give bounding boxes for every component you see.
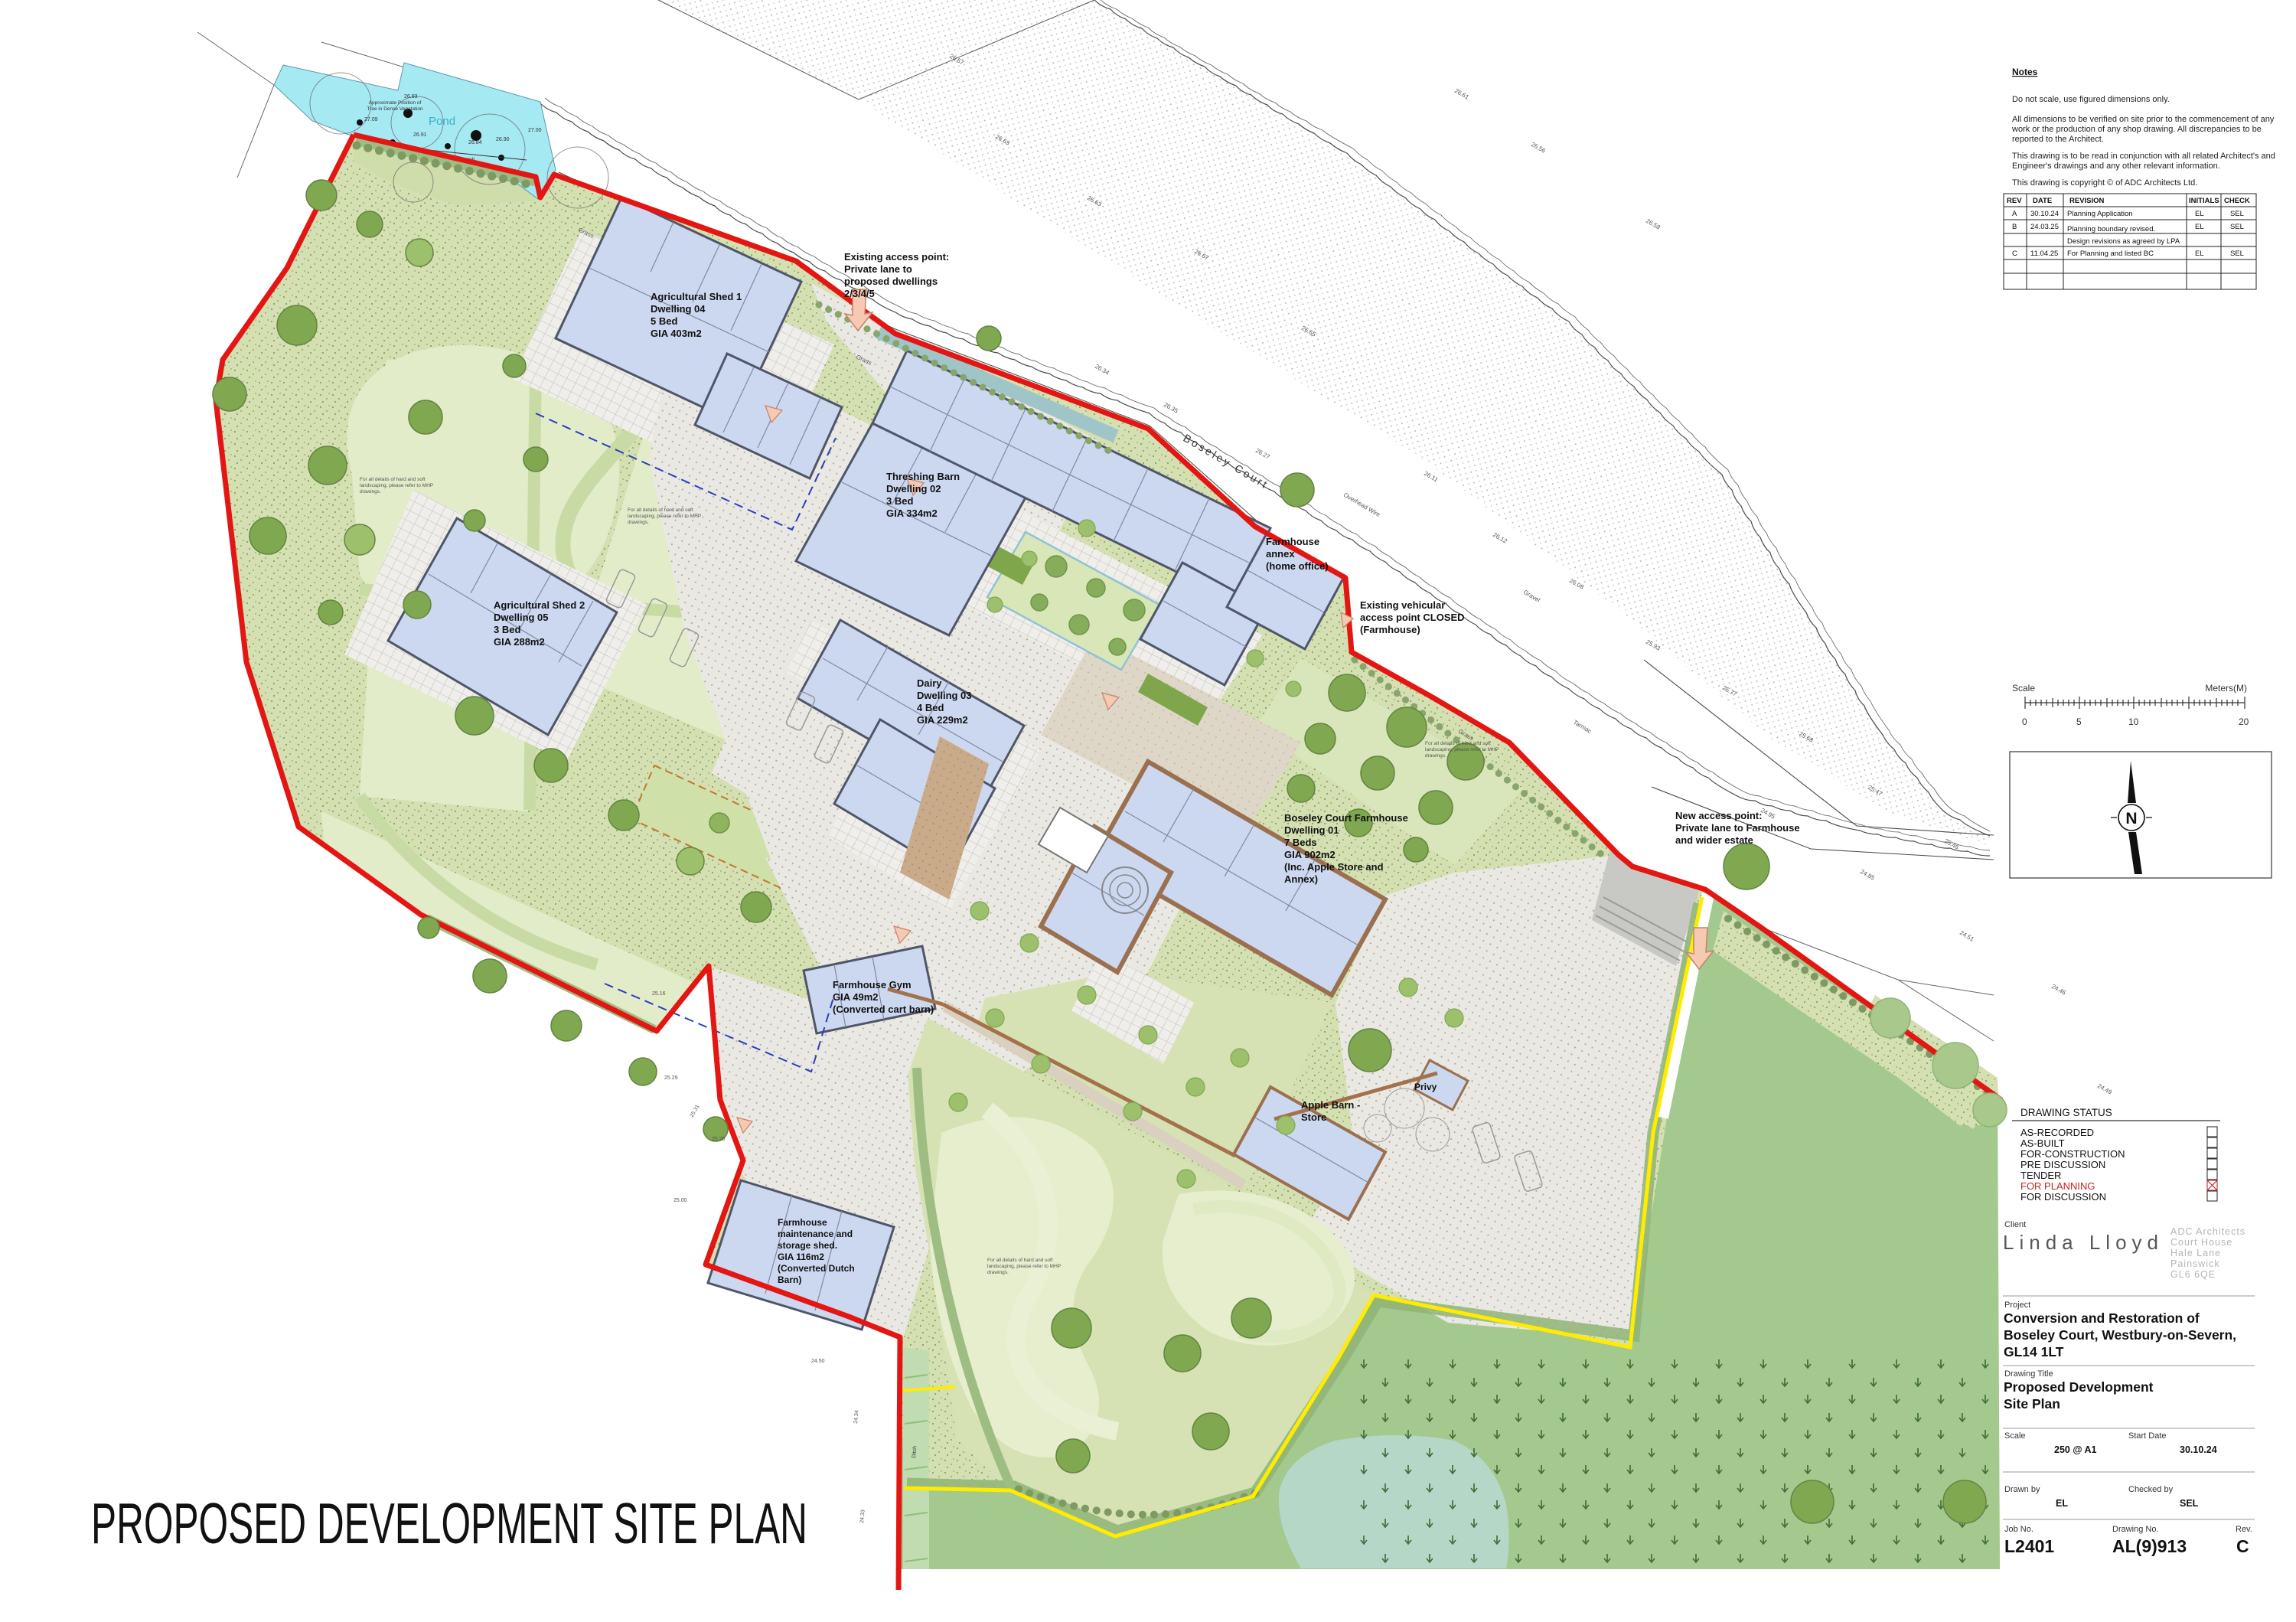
svg-text:4 Bed: 4 Bed — [917, 702, 944, 713]
svg-text:GIA 49m2: GIA 49m2 — [833, 991, 879, 1003]
svg-text:Hale Lane: Hale Lane — [2170, 1248, 2221, 1258]
svg-text:SEL: SEL — [2230, 250, 2244, 258]
svg-text:EL: EL — [2195, 250, 2204, 258]
svg-text:GL6 6QE: GL6 6QE — [2170, 1269, 2216, 1280]
svg-text:landscaping, please refer to M: landscaping, please refer to MHP — [987, 1264, 1061, 1269]
svg-text:Linda Lloyd: Linda Lloyd — [2003, 1231, 2164, 1254]
svg-text:Conversion and Restoration of: Conversion and Restoration of — [2004, 1310, 2200, 1326]
svg-text:For Planning and listed BC: For Planning and listed BC — [2067, 250, 2154, 258]
svg-text:SEL: SEL — [2230, 210, 2244, 218]
svg-text:20: 20 — [2239, 716, 2249, 727]
svg-text:DRAWING STATUS: DRAWING STATUS — [2020, 1107, 2112, 1118]
svg-text:Client: Client — [2004, 1220, 2026, 1229]
svg-text:work or the production of any: work or the production of any shop drawi… — [2011, 125, 2262, 134]
svg-text:FOR DISCUSSION: FOR DISCUSSION — [2020, 1191, 2106, 1203]
svg-text:CHECK: CHECK — [2224, 197, 2250, 205]
svg-text:Threshing Barn: Threshing Barn — [886, 471, 960, 482]
svg-text:25.16: 25.16 — [652, 991, 666, 997]
svg-text:GL14 1LT: GL14 1LT — [2004, 1344, 2064, 1359]
svg-text:Existing vehicular: Existing vehicular — [1360, 599, 1445, 611]
svg-text:25.28: 25.28 — [712, 1137, 726, 1142]
svg-text:Planning Application: Planning Application — [2067, 210, 2133, 218]
svg-text:250 @ A1: 250 @ A1 — [2054, 1444, 2097, 1455]
svg-text:GIA 403m2: GIA 403m2 — [651, 328, 702, 339]
svg-text:Scale: Scale — [2012, 683, 2035, 694]
svg-text:Court House: Court House — [2170, 1237, 2232, 1248]
svg-text:This drawing is to be read in: This drawing is to be read in conjunctio… — [2012, 152, 2275, 161]
svg-text:GIA 229m2: GIA 229m2 — [917, 714, 968, 726]
svg-text:drawings.: drawings. — [628, 520, 649, 525]
svg-text:and wider estate: and wider estate — [1675, 834, 1753, 846]
svg-text:PROPOSED DEVELOPMENT SITE PLAN: PROPOSED DEVELOPMENT SITE PLAN — [91, 1491, 807, 1555]
svg-text:GIA 288m2: GIA 288m2 — [494, 636, 545, 648]
svg-text:(Converted cart barn): (Converted cart barn) — [833, 1004, 934, 1015]
svg-text:Dwelling 03: Dwelling 03 — [917, 690, 972, 701]
svg-text:Do not scale, use figured dime: Do not scale, use figured dimensions onl… — [2012, 95, 2170, 104]
svg-text:storage shed.: storage shed. — [778, 1240, 837, 1251]
svg-text:PRE DISCUSSION: PRE DISCUSSION — [2020, 1159, 2105, 1170]
svg-text:AS-RECORDED: AS-RECORDED — [2020, 1127, 2094, 1138]
svg-text:Engineer's drawings and any ot: Engineer's drawings and any other releva… — [2012, 162, 2220, 171]
svg-text:Scale: Scale — [2004, 1431, 2026, 1441]
svg-text:Ditch: Ditch — [912, 1446, 918, 1459]
svg-text:A: A — [2012, 210, 2017, 218]
svg-text:C: C — [2012, 250, 2017, 258]
svg-text:3 Bed: 3 Bed — [886, 495, 913, 507]
svg-text:26.93: 26.93 — [404, 94, 418, 100]
svg-text:FOR PLANNING: FOR PLANNING — [2020, 1180, 2095, 1192]
svg-text:TENDER: TENDER — [2020, 1170, 2061, 1181]
svg-text:For all details of hard and so: For all details of hard and soft — [360, 477, 426, 482]
svg-text:27.00: 27.00 — [528, 128, 542, 133]
svg-text:proposed dwellings: proposed dwellings — [844, 276, 938, 287]
svg-text:7 Beds: 7 Beds — [1284, 837, 1317, 848]
svg-text:Apple Barn -: Apple Barn - — [1301, 1099, 1360, 1111]
svg-text:(Inc. Apple Store and: (Inc. Apple Store and — [1284, 861, 1384, 873]
svg-text:Rev.: Rev. — [2236, 1525, 2252, 1534]
svg-text:EL: EL — [2195, 210, 2204, 218]
svg-text:Project: Project — [2004, 1301, 2030, 1310]
svg-text:Job No.: Job No. — [2004, 1525, 2033, 1534]
svg-text:Planning boundary revised.: Planning boundary revised. — [2067, 225, 2155, 233]
svg-text:access point CLOSED: access point CLOSED — [1360, 612, 1465, 623]
svg-text:AL(9)913: AL(9)913 — [2112, 1536, 2187, 1556]
svg-text:0: 0 — [2022, 716, 2027, 727]
svg-text:Farmhouse Gym: Farmhouse Gym — [833, 979, 912, 990]
svg-text:Drawing No.: Drawing No. — [2112, 1525, 2159, 1534]
svg-text:Agricultural Shed 2: Agricultural Shed 2 — [494, 599, 585, 611]
svg-text:Design revisions as agreed by: Design revisions as agreed by LPA — [2067, 237, 2180, 246]
svg-text:26.91: 26.91 — [413, 132, 427, 138]
svg-text:Painswick: Painswick — [2170, 1258, 2220, 1269]
svg-text:11.04.25: 11.04.25 — [2030, 250, 2058, 258]
svg-text:3 Bed: 3 Bed — [494, 624, 520, 635]
svg-text:landscaping, please refer to M: landscaping, please refer to MHP — [1425, 747, 1499, 752]
svg-text:Dwelling 05: Dwelling 05 — [494, 612, 549, 623]
svg-text:Annex): Annex) — [1284, 873, 1318, 885]
svg-text:(Converted Dutch: (Converted Dutch — [778, 1263, 855, 1274]
svg-text:Pond: Pond — [429, 115, 455, 128]
svg-text:For all details of hard and so: For all details of hard and soft — [1425, 741, 1491, 746]
svg-text:For all details of hard and so: For all details of hard and soft — [628, 507, 693, 513]
svg-text:This drawing is copyright © of: This drawing is copyright © of ADC Archi… — [2012, 178, 2197, 188]
svg-text:Boseley Court, Westbury-on-Sev: Boseley Court, Westbury-on-Severn, — [2004, 1327, 2236, 1343]
svg-text:drawings.: drawings. — [987, 1270, 1009, 1275]
svg-text:(home office): (home office) — [1266, 560, 1329, 572]
svg-text:Proposed Development: Proposed Development — [2004, 1379, 2154, 1395]
svg-text:B: B — [2012, 223, 2017, 231]
svg-text:SEL: SEL — [2180, 1498, 2199, 1509]
svg-text:FOR-CONSTRUCTION: FOR-CONSTRUCTION — [2020, 1148, 2125, 1160]
svg-text:REV: REV — [2007, 197, 2022, 205]
svg-text:annex: annex — [1266, 548, 1295, 560]
svg-text:GIA 334m2: GIA 334m2 — [886, 507, 938, 519]
svg-text:SEL: SEL — [2230, 223, 2244, 231]
svg-text:maintenance and: maintenance and — [778, 1229, 853, 1239]
svg-text:5 Bed: 5 Bed — [651, 315, 677, 327]
svg-text:Private lane to Farmhouse: Private lane to Farmhouse — [1675, 822, 1800, 834]
svg-text:drawings.: drawings. — [360, 489, 381, 494]
svg-text:Start Date: Start Date — [2128, 1431, 2167, 1441]
svg-text:Tree in Dense Vegetation: Tree in Dense Vegetation — [367, 106, 422, 112]
svg-text:landscaping, please refer to M: landscaping, please refer to MHP — [628, 514, 701, 519]
svg-text:24.03.25: 24.03.25 — [2030, 223, 2059, 231]
svg-text:Drawing Title: Drawing Title — [2004, 1369, 2053, 1379]
svg-text:Meters(M): Meters(M) — [2205, 683, 2247, 694]
svg-text:Notes: Notes — [2012, 67, 2038, 77]
svg-text:Privy: Privy — [1414, 1082, 1437, 1092]
svg-text:Dwelling 04: Dwelling 04 — [651, 303, 706, 315]
svg-text:New access point:: New access point: — [1675, 810, 1762, 821]
svg-text:27.09: 27.09 — [364, 117, 378, 122]
svg-text:(Farmhouse): (Farmhouse) — [1360, 624, 1420, 635]
svg-text:L2401: L2401 — [2004, 1536, 2054, 1556]
svg-text:Store: Store — [1301, 1111, 1326, 1123]
svg-text:2/3/4/5: 2/3/4/5 — [844, 288, 875, 299]
svg-text:AS-BUILT: AS-BUILT — [2020, 1137, 2065, 1149]
svg-text:Farmhouse: Farmhouse — [778, 1217, 827, 1228]
svg-text:drawings.: drawings. — [1425, 753, 1446, 759]
svg-text:Boseley Court Farmhouse: Boseley Court Farmhouse — [1284, 812, 1408, 824]
svg-text:INITIALS: INITIALS — [2189, 197, 2219, 205]
svg-text:DATE: DATE — [2033, 197, 2052, 205]
svg-text:26.84: 26.84 — [468, 140, 482, 145]
svg-text:REVISION: REVISION — [2069, 197, 2105, 205]
svg-text:Barn): Barn) — [778, 1274, 801, 1285]
svg-text:Dairy: Dairy — [917, 677, 942, 689]
svg-text:Private lane to: Private lane to — [844, 263, 912, 275]
svg-text:Drawn by: Drawn by — [2004, 1485, 2040, 1494]
svg-text:Site Plan: Site Plan — [2004, 1396, 2060, 1411]
svg-text:24.50: 24.50 — [811, 1359, 825, 1364]
svg-text:landscaping, please refer to M: landscaping, please refer to MHP — [360, 483, 433, 488]
svg-text:25.00: 25.00 — [673, 1198, 687, 1203]
svg-text:26.90: 26.90 — [496, 137, 510, 142]
svg-text:Dwelling 01: Dwelling 01 — [1284, 824, 1339, 836]
svg-text:All dimensions to be verified: All dimensions to be verified on site pr… — [2012, 115, 2275, 124]
svg-text:GIA 116m2: GIA 116m2 — [778, 1252, 824, 1262]
svg-text:EL: EL — [2195, 223, 2204, 231]
svg-text:Existing access point:: Existing access point: — [844, 251, 949, 263]
svg-text:Checked by: Checked by — [2128, 1485, 2174, 1494]
svg-text:Agricultural Shed 1: Agricultural Shed 1 — [651, 291, 742, 302]
svg-text:Farmhouse: Farmhouse — [1266, 536, 1319, 547]
svg-text:25.29: 25.29 — [664, 1075, 678, 1081]
svg-text:30.10.24: 30.10.24 — [2030, 210, 2059, 218]
svg-text:reported to the Architect.: reported to the Architect. — [2012, 135, 2104, 144]
svg-text:30.10.24: 30.10.24 — [2180, 1444, 2217, 1455]
svg-text:10: 10 — [2128, 716, 2139, 727]
svg-text:Approximate Position of: Approximate Position of — [369, 100, 422, 106]
svg-text:5: 5 — [2076, 716, 2082, 727]
svg-text:For all details of hard and so: For all details of hard and soft — [987, 1258, 1053, 1263]
svg-text:C: C — [2236, 1536, 2249, 1556]
svg-text:EL: EL — [2056, 1498, 2068, 1509]
svg-text:Dwelling 02: Dwelling 02 — [886, 483, 941, 494]
svg-text:GIA 902m2: GIA 902m2 — [1284, 849, 1336, 860]
svg-text:N: N — [2125, 810, 2137, 827]
svg-text:ADC Architects: ADC Architects — [2170, 1226, 2245, 1237]
